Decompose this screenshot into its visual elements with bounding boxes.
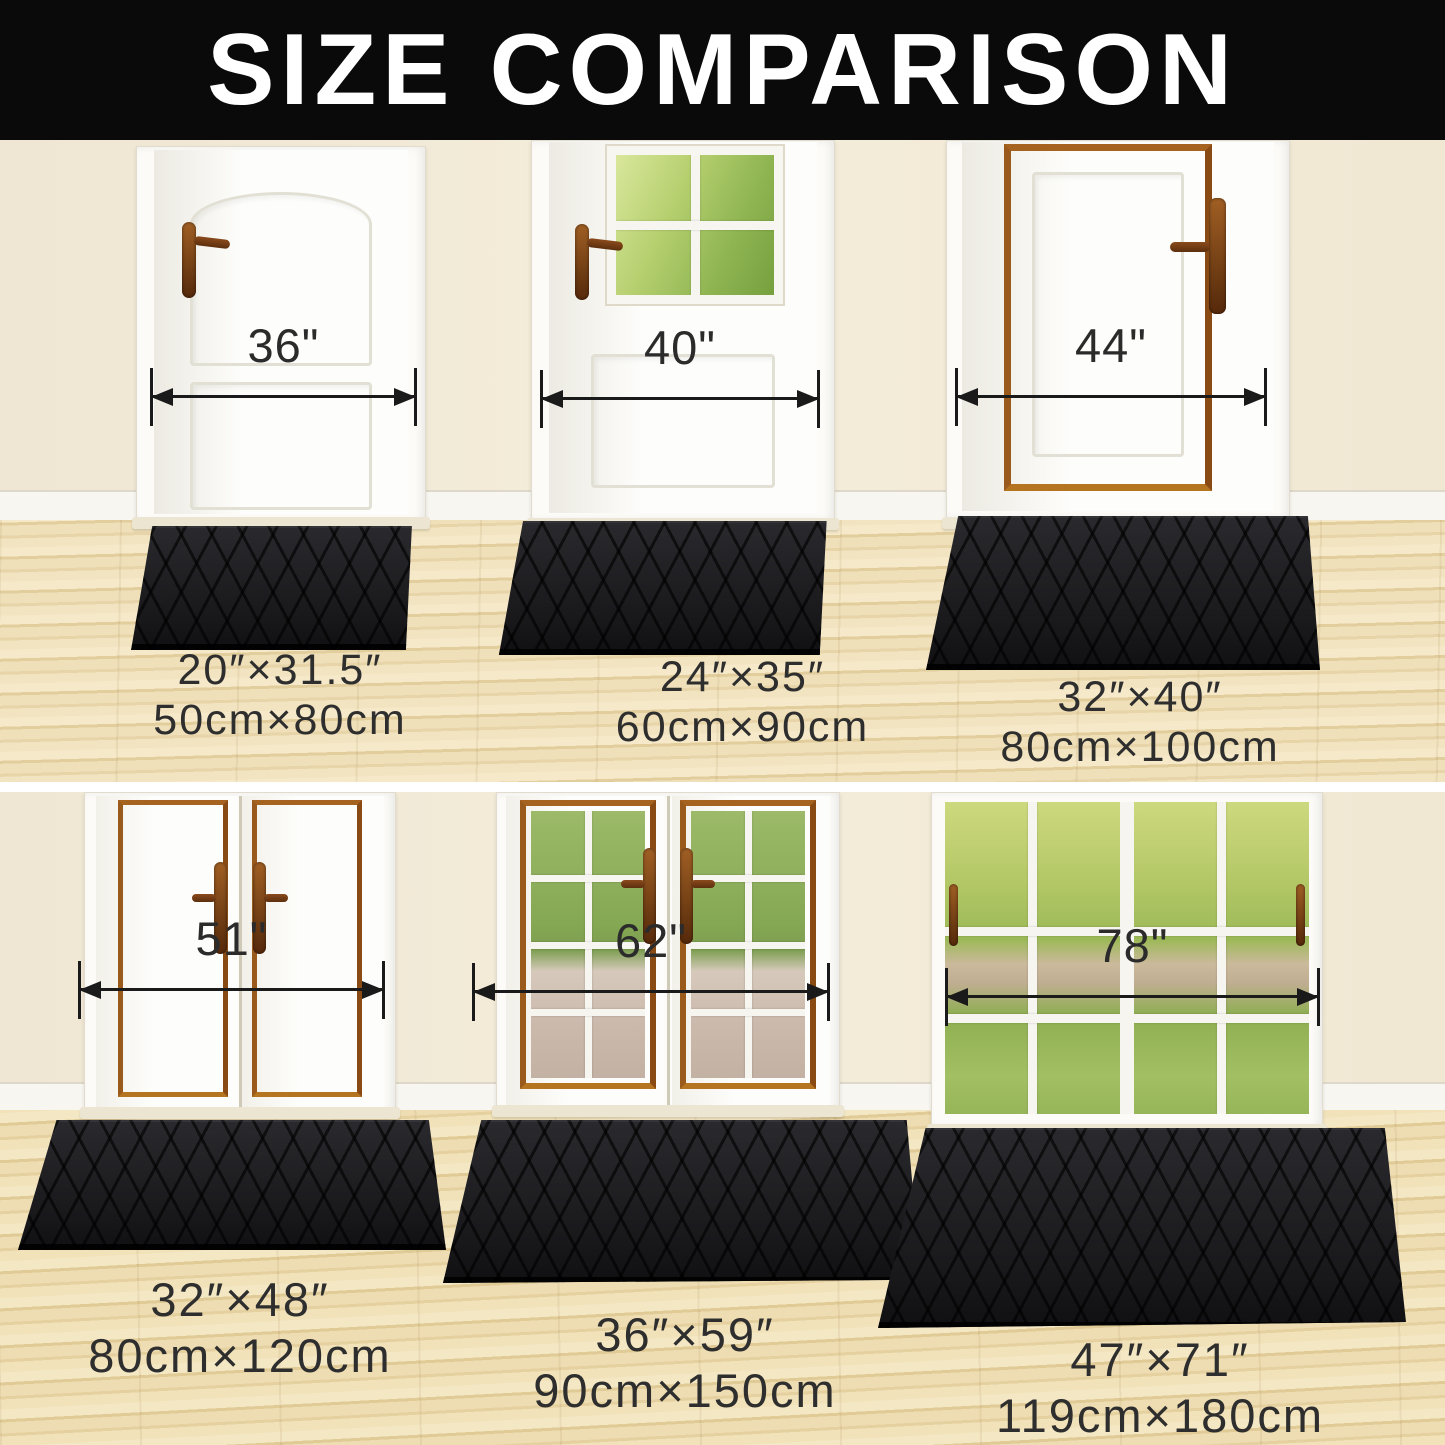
mat-size-label: 32″×48″ 80cm×120cm <box>55 1272 425 1384</box>
mat-size-inches: 47″×71″ <box>945 1332 1375 1388</box>
mat-size-inches: 20″×31.5″ <box>110 645 450 695</box>
doormat-36x59 <box>443 1120 921 1283</box>
measure-arrow <box>81 988 382 991</box>
doormat-20x31 <box>122 526 424 650</box>
measure-arrow <box>475 990 827 993</box>
door-handle-lever <box>264 894 288 902</box>
section-divider <box>0 782 1445 792</box>
door-width-value: 36" <box>150 318 417 373</box>
doormat-32x48 <box>18 1120 446 1250</box>
door-handle-lever <box>1170 242 1210 252</box>
door-width-value: 51" <box>78 911 385 966</box>
window-muntin <box>616 221 774 230</box>
page-title: SIZE COMPARISON <box>207 13 1238 128</box>
door-handle-lever <box>192 894 216 902</box>
door-handle <box>575 224 589 300</box>
mat-size-label: 32″×40″ 80cm×100cm <box>955 672 1325 772</box>
top-row-scene: 36" 40" 44" 20″×31.5″ 50cm×80cm 24″×35″ <box>0 140 1445 782</box>
size-comparison-infographic: SIZE COMPARISON <box>0 0 1445 1445</box>
doormat-47x71 <box>878 1128 1406 1328</box>
door-width-value: 62" <box>472 913 830 968</box>
bottom-row-scene: 51" 62" 78" 32″×48″ 80cm×120cm 36″×59″ <box>0 792 1445 1445</box>
measure-arrow <box>948 995 1317 998</box>
door-width-value: 44" <box>955 318 1267 373</box>
header-banner: SIZE COMPARISON <box>0 0 1445 140</box>
mat-size-label: 20″×31.5″ 50cm×80cm <box>110 645 450 745</box>
mat-size-cm: 50cm×80cm <box>110 695 450 745</box>
mat-size-label: 36″×59″ 90cm×150cm <box>485 1307 885 1419</box>
door-width-value: 78" <box>945 918 1320 973</box>
door-handle <box>1209 198 1226 314</box>
mat-size-cm: 60cm×90cm <box>570 702 915 752</box>
mat-size-inches: 24″×35″ <box>570 652 915 702</box>
door-panel <box>1032 172 1184 457</box>
door-handle-lever <box>691 880 715 888</box>
doormat-24x35 <box>492 521 837 655</box>
door-threshold <box>80 1107 400 1119</box>
door-handle <box>182 222 196 298</box>
mat-size-cm: 80cm×100cm <box>955 722 1325 772</box>
door-threshold <box>492 1105 844 1117</box>
mat-size-label: 24″×35″ 60cm×90cm <box>570 652 915 752</box>
window-muntin <box>531 1009 645 1016</box>
door-panel-bottom <box>190 382 372 510</box>
mat-size-cm: 119cm×180cm <box>945 1388 1375 1444</box>
mat-size-label: 47″×71″ 119cm×180cm <box>945 1332 1375 1444</box>
door-handle-lever <box>621 880 645 888</box>
window-glass <box>616 155 774 295</box>
window-muntin <box>945 1014 1120 1023</box>
doormat-32x40 <box>922 516 1324 670</box>
mat-size-cm: 80cm×120cm <box>55 1328 425 1384</box>
measure-arrow <box>543 397 817 400</box>
door-window <box>607 146 783 304</box>
mat-size-inches: 36″×59″ <box>485 1307 885 1363</box>
mat-size-cm: 90cm×150cm <box>485 1363 885 1419</box>
door-width-value: 40" <box>540 320 820 375</box>
measure-arrow <box>153 395 414 398</box>
measure-arrow <box>958 395 1264 398</box>
window-muntin <box>1134 1014 1309 1023</box>
window-muntin <box>691 1009 805 1016</box>
mat-size-inches: 32″×48″ <box>55 1272 425 1328</box>
mat-size-inches: 32″×40″ <box>955 672 1325 722</box>
